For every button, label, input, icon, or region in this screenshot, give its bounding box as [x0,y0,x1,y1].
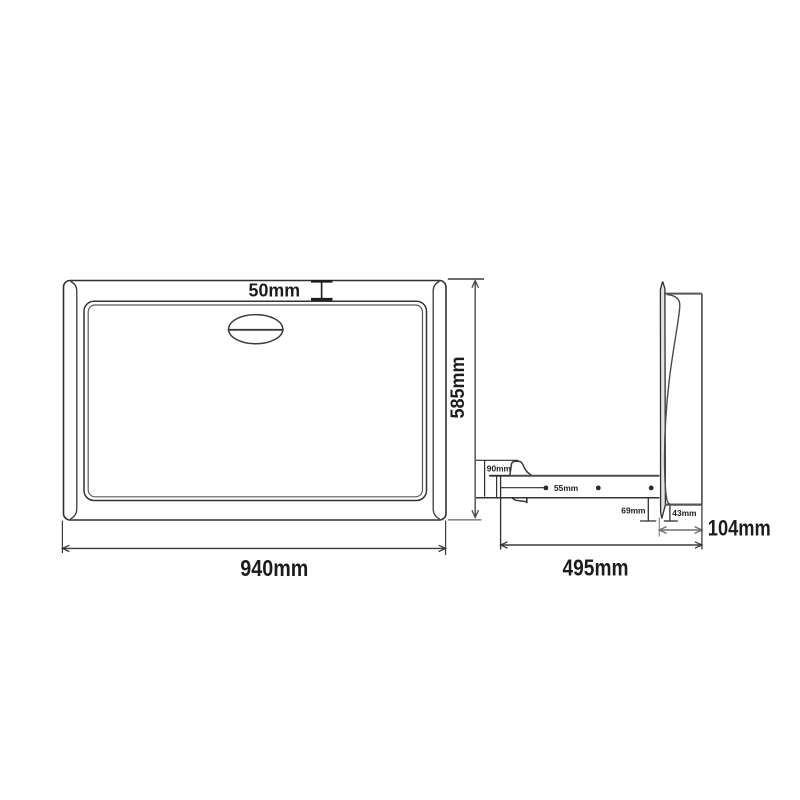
svg-text:43mm: 43mm [672,508,696,518]
svg-text:104mm: 104mm [708,515,771,540]
svg-text:495mm: 495mm [563,555,629,581]
svg-text:55mm: 55mm [554,483,578,493]
svg-text:50mm: 50mm [249,280,301,300]
svg-text:69mm: 69mm [621,505,645,515]
svg-text:585mm: 585mm [448,357,469,419]
svg-text:940mm: 940mm [240,555,308,581]
svg-text:90mm: 90mm [487,464,511,474]
